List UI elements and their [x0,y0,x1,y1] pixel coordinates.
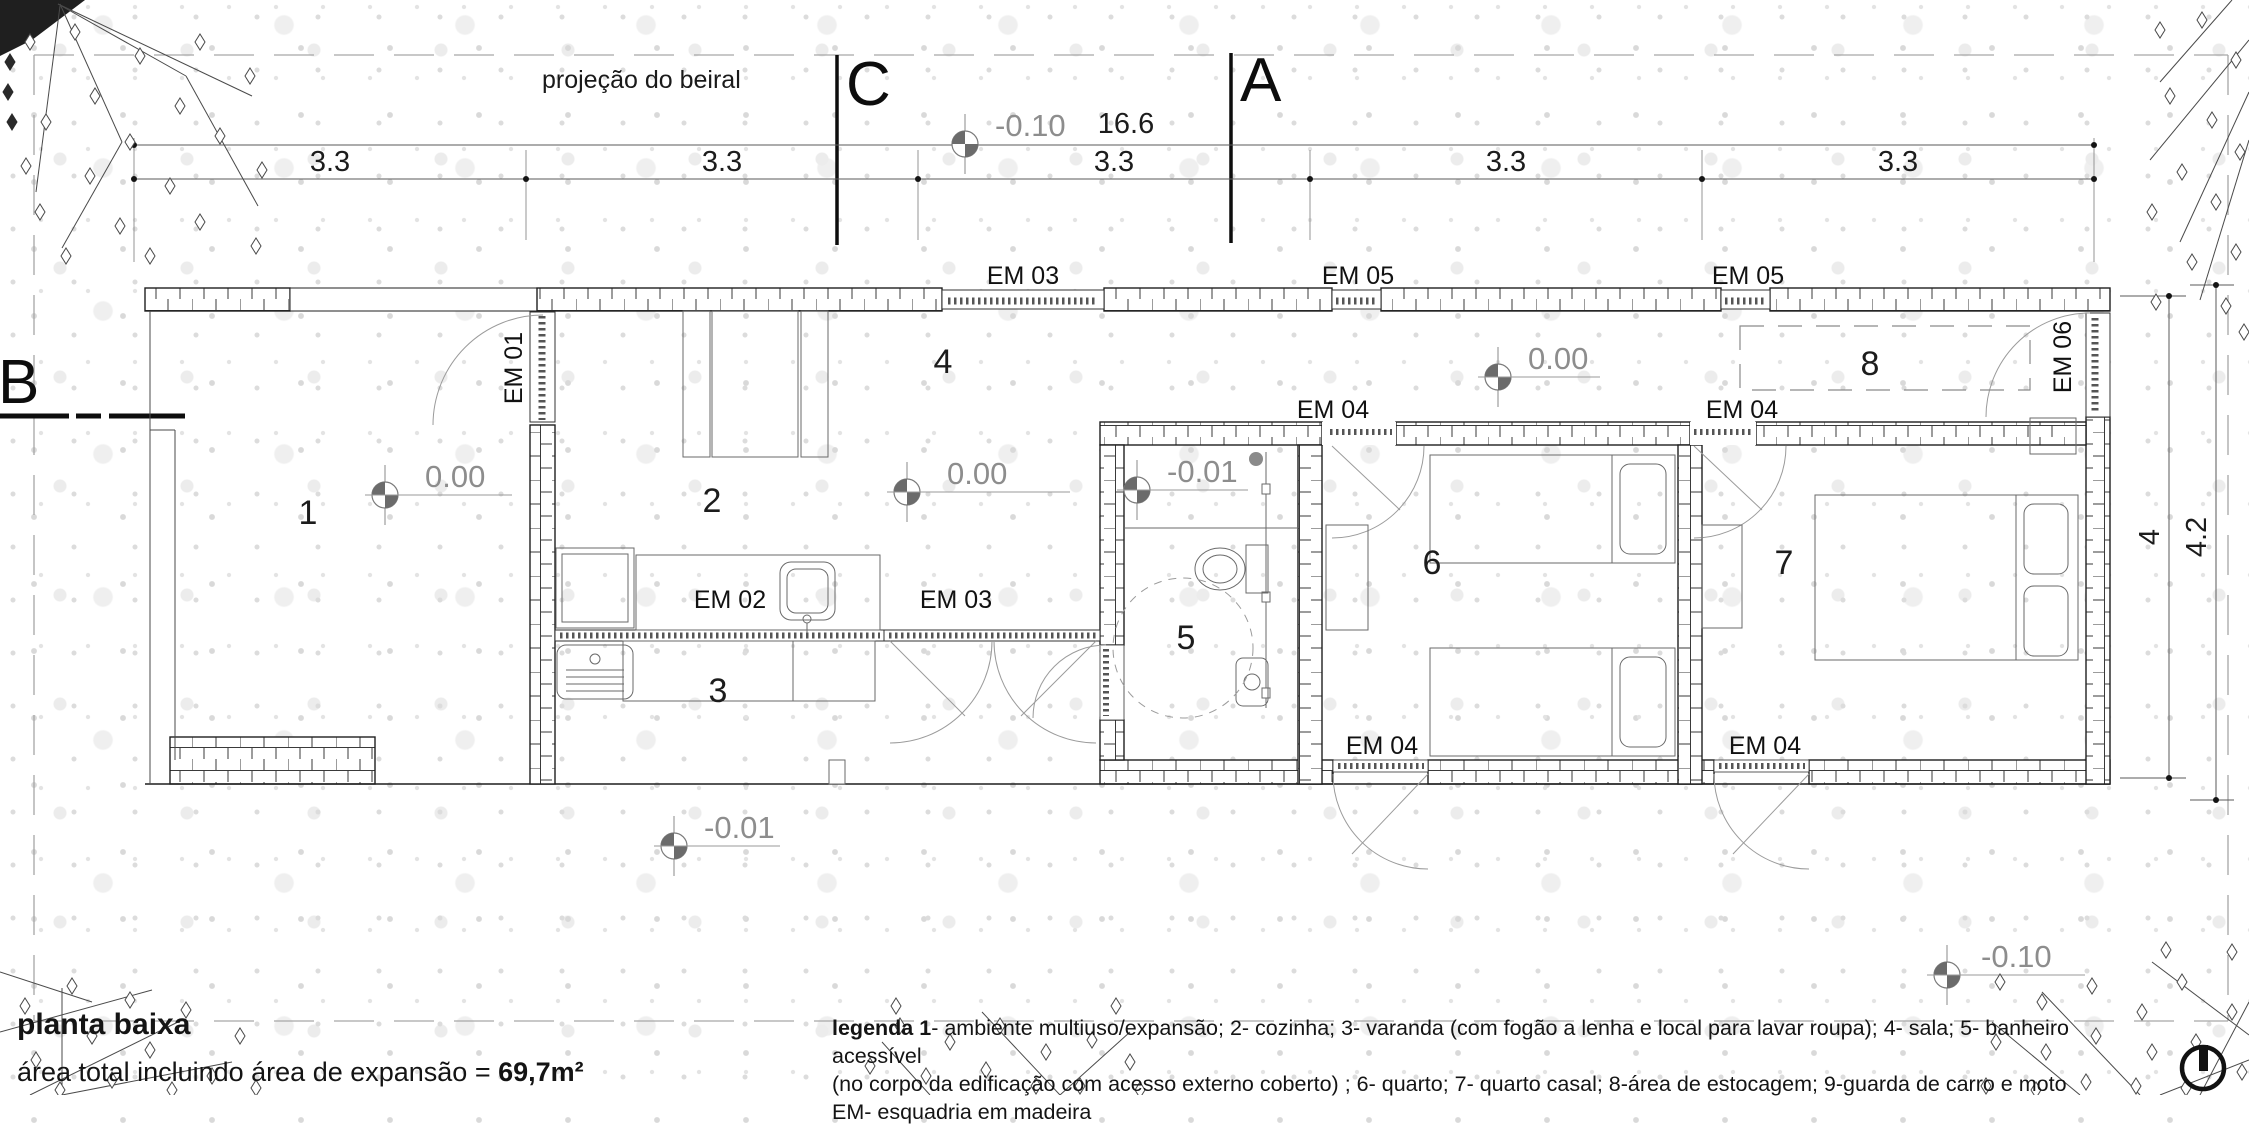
level-marker-bedroom-hall: 0.00 [1478,341,1600,407]
veranda-furniture [557,641,875,784]
legend-line-2: (no corpo da edificação com acesso exter… [832,1070,2152,1098]
dim-segment-2: 3.3 [702,146,742,178]
label-em04-bottom-room6: EM 04 [1346,732,1418,760]
shower-head [1249,452,1263,466]
legend-line-1: legenda 1- ambiente multiuso/expansão; 2… [832,1014,2152,1070]
dim-inner-height: 4 [2134,529,2166,545]
label-em04-top-room6: EM 04 [1297,396,1369,424]
level-marker-site-top: -0.10 [952,108,1066,174]
legend-keyword: legenda 1 [832,1016,931,1040]
side-table [1702,525,1742,628]
stove [556,548,634,628]
kitchen-sink [780,562,835,620]
eave-projection-label: projeção do beiral [542,66,741,94]
room-label-3: 3 [709,672,728,710]
door-em01 [433,312,555,425]
room-label-8: 8 [1861,345,1880,383]
toilet-tank [1246,545,1268,593]
label-em04-bottom-room7: EM 04 [1729,732,1801,760]
level-marker-living: 0.00 [887,456,1070,522]
level-marker-bathroom: -0.01 [1117,454,1248,520]
drawing-title: planta baixa [17,1008,190,1042]
room-label-2: 2 [703,482,722,520]
section-marker-b: B [0,348,185,417]
total-area-note: área total incluindo área de expansão = … [17,1057,584,1088]
window-em05-right [1721,290,1770,309]
dim-total-width: 16.6 [1098,108,1154,140]
section-letter-b: B [0,348,39,417]
door-bathroom [1033,645,1124,720]
section-letter-c: C [846,50,891,119]
section-marker-c: C [837,50,891,245]
room-label-6: 6 [1423,544,1442,582]
kitchen-furniture [556,311,880,633]
dim-outer-height: 4.2 [2181,517,2213,557]
label-em02: EM 02 [694,586,766,614]
svg-text:-0.01: -0.01 [704,810,775,845]
label-em01: EM 01 [500,332,528,404]
bedroom6-furniture [1326,455,1675,756]
label-em06: EM 06 [2049,321,2077,393]
dim-segment-1: 3.3 [310,146,350,178]
room-label-1: 1 [299,494,318,532]
svg-text:0.00: 0.00 [1528,341,1588,376]
door-em06 [1986,313,2110,417]
legend-line-3: EM- esquadria em madeira [832,1098,2152,1126]
label-em03-top: EM 03 [987,262,1059,290]
svg-text:-0.01: -0.01 [1167,454,1238,489]
door-em04-bottom-room7 [1714,760,1809,869]
dim-segment-4: 3.3 [1486,146,1526,178]
window-em03-top [942,290,1104,309]
tree-top-left-icon [0,0,267,264]
single-bed-2 [1430,648,1675,756]
double-bed [1815,495,2078,660]
legend-block: legenda 1- ambiente multiuso/expansão; 2… [832,1014,2152,1126]
tree-top-right-icon [2147,0,2249,340]
desk [1326,525,1368,630]
north-arrow-icon [2182,1045,2224,1089]
label-em05-left: EM 05 [1322,262,1394,290]
floor-plan-drawing: projeção do beiral C A B 16.6 [0,0,2249,1095]
bathroom-basin [1236,658,1268,706]
room-label-7: 7 [1775,544,1794,582]
section-letter-a: A [1240,46,1282,115]
svg-text:0.00: 0.00 [425,459,485,494]
label-em05-right: EM 05 [1712,262,1784,290]
total-area-value: 69,7m² [498,1057,584,1087]
level-marker-veranda-front: -0.01 [654,810,780,876]
room-label-4: 4 [934,343,953,381]
single-bed-1 [1430,455,1675,563]
door-em03-interior [884,630,1100,743]
svg-text:0.00: 0.00 [947,456,1007,491]
dim-segment-5: 3.3 [1878,146,1918,178]
label-em03-interior: EM 03 [920,586,992,614]
svg-text:-0.10: -0.10 [1981,939,2052,974]
room-label-5: 5 [1177,619,1196,657]
total-area-label: área total incluindo área de expansão = [17,1057,498,1087]
veranda-post [829,760,845,784]
dim-segment-3: 3.3 [1094,146,1134,178]
window-em05-left [1332,290,1381,309]
floor-plan-sheet: { "drawing": { "eave_label": "projeção d… [0,0,2249,1095]
svg-text:-0.10: -0.10 [995,108,1066,143]
eave-projection-outline [34,55,2228,1021]
label-em04-top-room7: EM 04 [1706,396,1778,424]
bedroom7-furniture [1702,418,2078,660]
window-em02-band [555,630,884,641]
level-marker-room1: 0.00 [365,459,512,525]
level-marker-site-bottom: -0.10 [1927,939,2085,1005]
door-em04-bottom-room6 [1333,760,1428,869]
storage-wardrobe-outline [1740,326,2030,390]
